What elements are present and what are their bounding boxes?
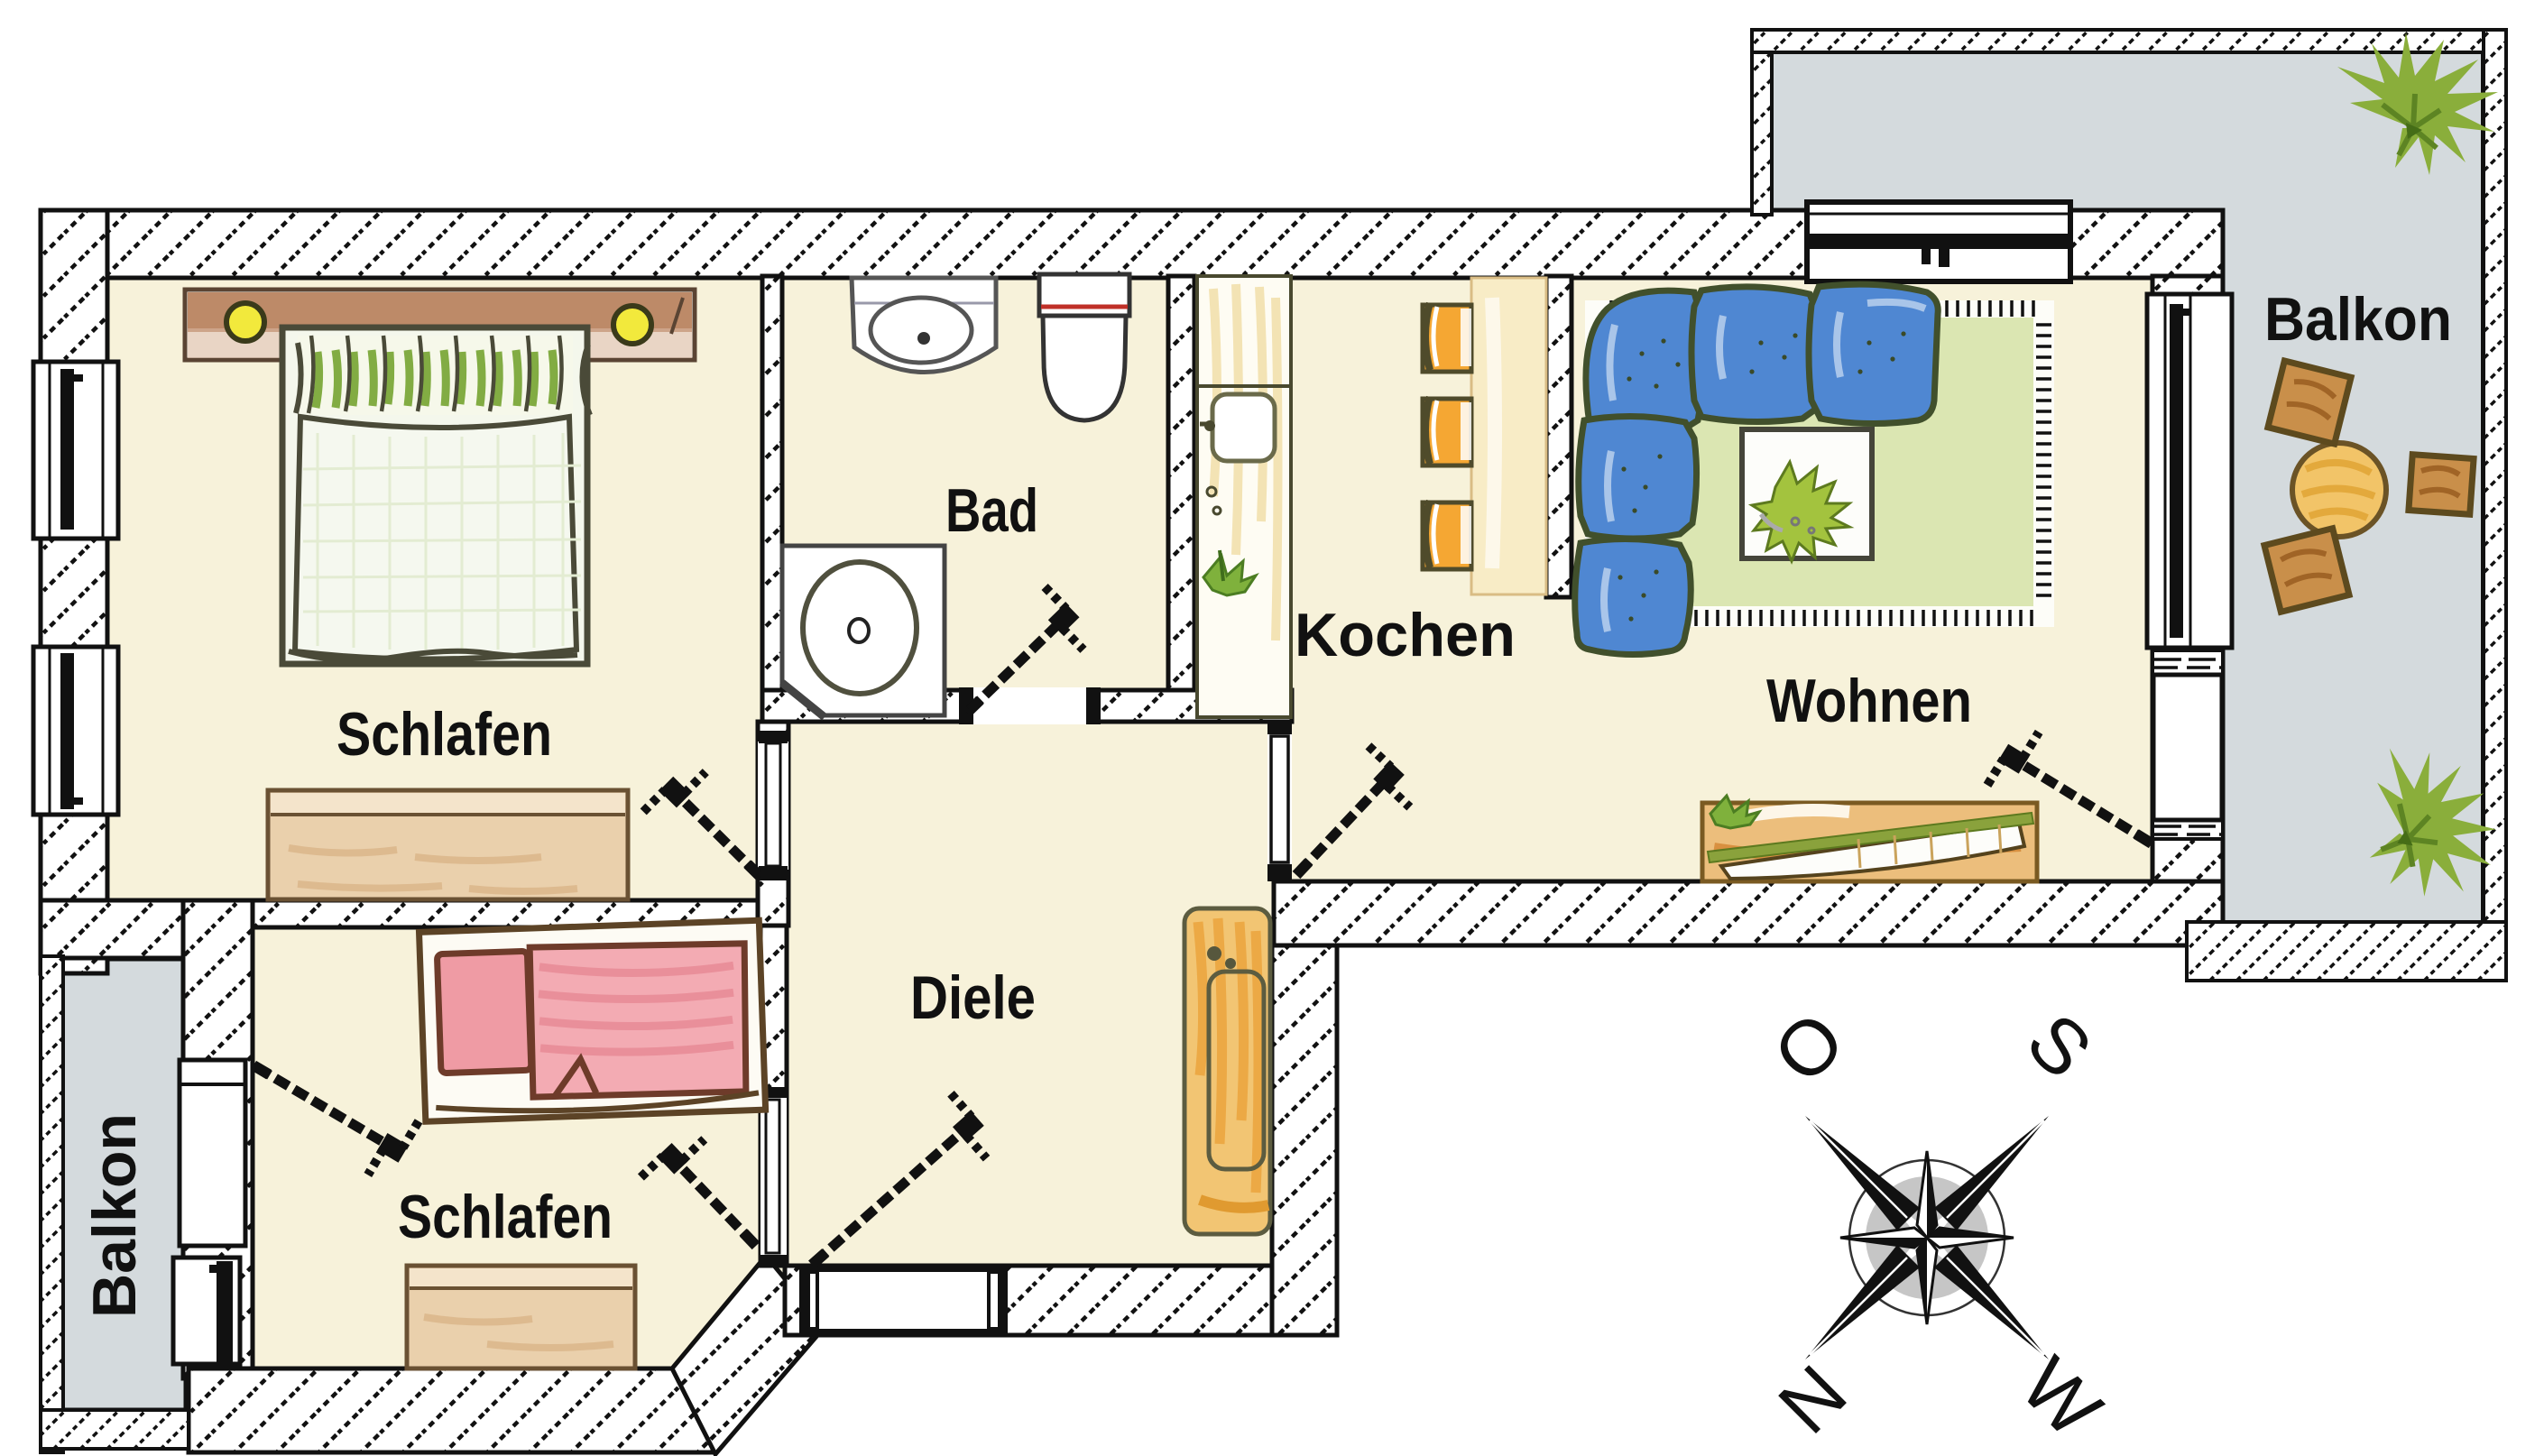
svg-text:Schlafen: Schlafen bbox=[398, 1183, 613, 1251]
svg-text:Bad: Bad bbox=[945, 476, 1038, 545]
svg-text:Kochen: Kochen bbox=[1295, 601, 1516, 669]
svg-text:Diele: Diele bbox=[910, 963, 1036, 1032]
svg-text:Schlafen: Schlafen bbox=[336, 700, 552, 769]
svg-text:Wohnen: Wohnen bbox=[1766, 667, 1972, 735]
svg-text:Balkon: Balkon bbox=[80, 1113, 149, 1318]
svg-text:Balkon: Balkon bbox=[2264, 285, 2452, 354]
